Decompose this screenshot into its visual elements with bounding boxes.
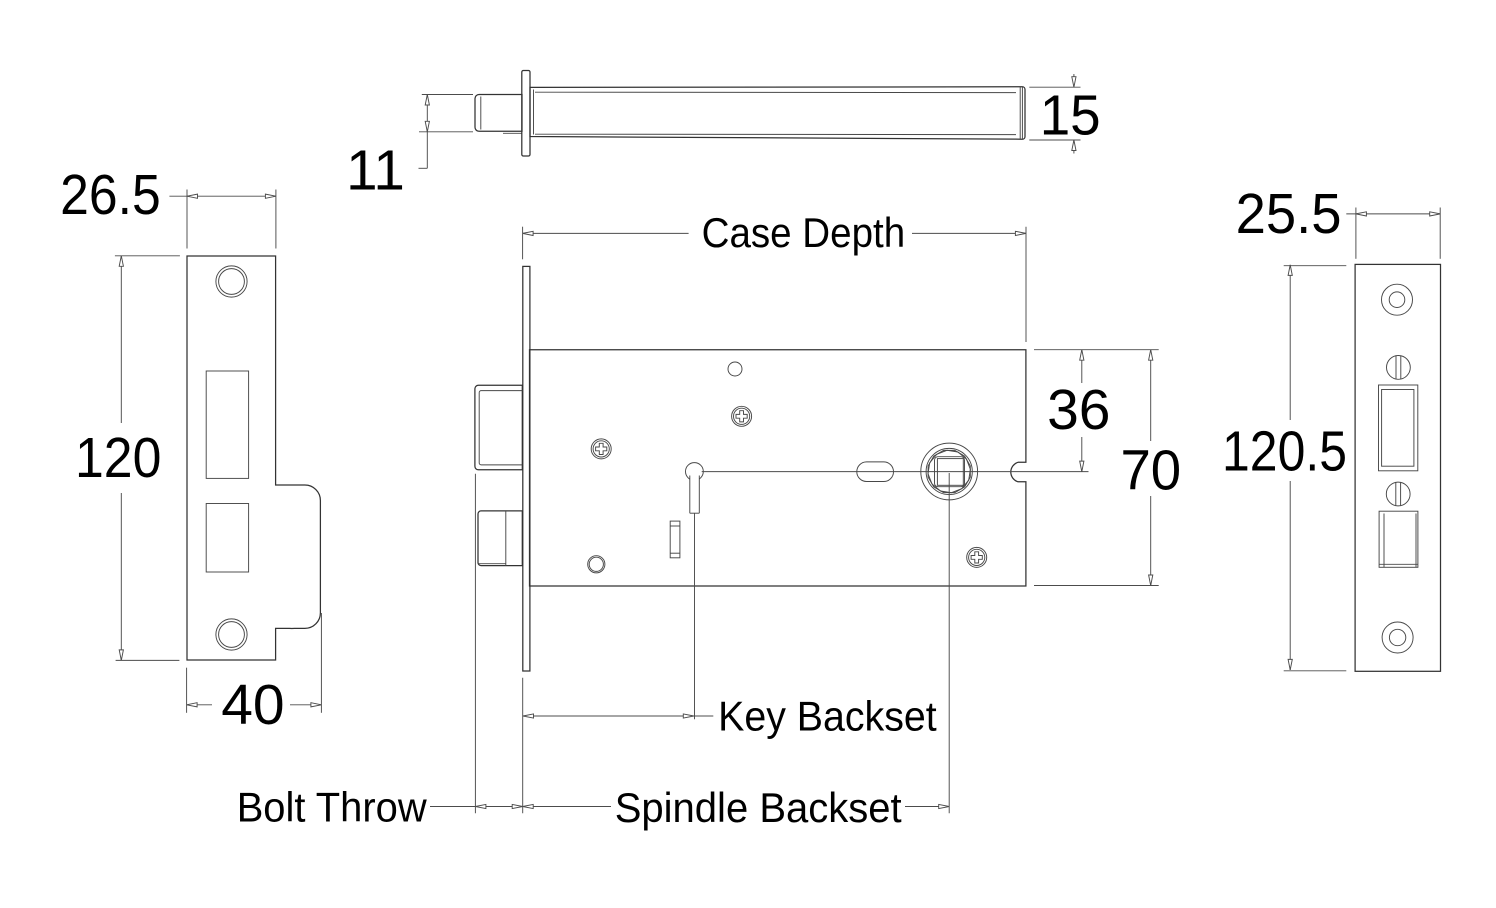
- svg-text:120: 120: [75, 426, 161, 490]
- svg-text:11: 11: [346, 138, 405, 202]
- svg-text:Key Backset: Key Backset: [718, 693, 937, 740]
- svg-text:120.5: 120.5: [1222, 420, 1347, 484]
- svg-text:40: 40: [221, 673, 284, 737]
- svg-text:70: 70: [1120, 439, 1181, 503]
- svg-text:26.5: 26.5: [60, 163, 161, 227]
- svg-text:15: 15: [1040, 83, 1101, 147]
- svg-text:25.5: 25.5: [1236, 182, 1342, 246]
- svg-text:36: 36: [1047, 378, 1110, 442]
- svg-text:Spindle Backset: Spindle Backset: [615, 784, 902, 831]
- svg-text:Case Depth: Case Depth: [702, 209, 906, 256]
- svg-text:Bolt Throw: Bolt Throw: [237, 784, 428, 831]
